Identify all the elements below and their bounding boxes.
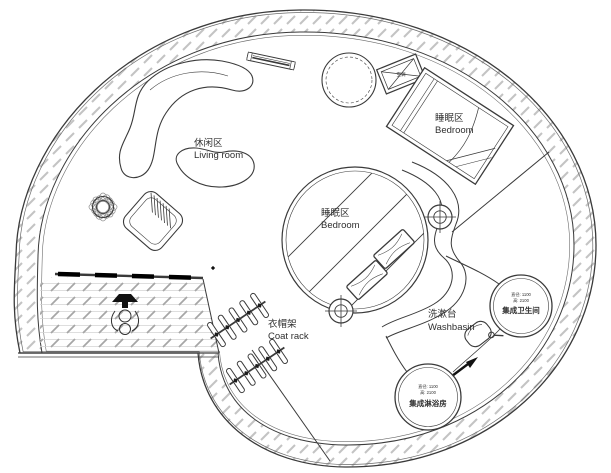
floor-plan-canvas: 空调 睡眠区 Bedroom 睡眠区 Bedro xyxy=(0,0,611,473)
potted-plant xyxy=(89,193,118,222)
shower-pod-diameter: 直径: 1100 xyxy=(418,383,438,389)
label-coat-rack-zh: 衣帽架 xyxy=(268,318,297,330)
direction-arrow xyxy=(452,357,478,376)
label-washbasin-en: Washbasin xyxy=(428,322,475,333)
wall-end-dot xyxy=(211,266,215,270)
wall-shelf xyxy=(247,52,296,70)
person-hat-stem xyxy=(122,302,128,308)
label-bedroom-loft-en: Bedroom xyxy=(435,125,474,136)
shower-pod-name: 集成淋浴房 xyxy=(408,398,447,408)
label-bedroom-center-en: Bedroom xyxy=(321,220,360,231)
toilet-pod[interactable]: 直径: 1100 高: 2100 集成卫生间 xyxy=(490,275,552,337)
shower-pod-height: 高: 2100 xyxy=(420,389,437,396)
counter-edge-upper xyxy=(446,256,499,284)
toilet-pod-height: 高: 2100 xyxy=(513,297,530,304)
plant-pot-inner xyxy=(97,201,110,214)
label-bedroom-loft-zh: 睡眠区 xyxy=(435,112,464,124)
label-living-room-zh: 休闲区 xyxy=(194,137,223,149)
counter-edge-lower xyxy=(386,336,407,372)
terrace xyxy=(18,266,219,357)
label-coat-rack-en: Coat rack xyxy=(268,331,309,342)
round-table[interactable] xyxy=(322,53,376,107)
coat-rack-2[interactable] xyxy=(222,336,292,396)
ac-label: 空调 xyxy=(397,71,406,78)
column-symbol-upper xyxy=(424,201,456,233)
floor-plan-drawing: 空调 睡眠区 Bedroom 睡眠区 Bedro xyxy=(0,0,611,473)
label-bedroom-center-zh: 睡眠区 xyxy=(321,207,350,219)
lounge-chair[interactable] xyxy=(120,188,186,254)
shower-pod[interactable]: 直径: 1100 高: 2100 集成淋浴房 xyxy=(395,364,461,430)
label-washbasin-zh: 洗漱台 xyxy=(428,308,457,320)
terrace-deck xyxy=(40,277,219,353)
toilet-pod-name: 集成卫生间 xyxy=(501,305,540,315)
toilet-pod-diameter: 直径: 1100 xyxy=(511,291,531,297)
label-living-room-en: Living room xyxy=(194,150,243,161)
